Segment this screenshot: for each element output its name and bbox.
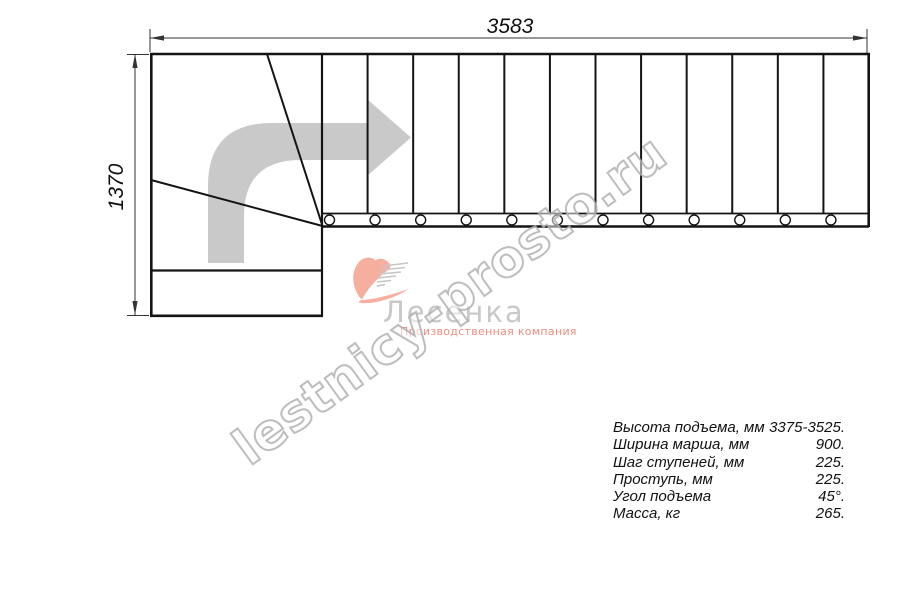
baluster-circle (416, 215, 426, 225)
spec-value: 3375-3525. (769, 419, 845, 436)
baluster-circle (461, 215, 471, 225)
spec-label: Угол подъема (613, 488, 711, 505)
spec-value: 45°. (818, 488, 845, 505)
spec-value: 225. (816, 471, 845, 488)
arrowhead-up (132, 54, 137, 68)
stair-outline (150, 53, 870, 317)
spec-value: 265. (816, 505, 845, 522)
spec-label: Высота подъема, мм (613, 419, 765, 436)
tread-lines (368, 54, 824, 214)
spec-value: 225. (816, 454, 845, 471)
height-dimension-label: 1370 (105, 137, 129, 237)
spec-table: Высота подъема, мм 3375-3525. Ширина мар… (613, 419, 845, 523)
spec-value: 900. (816, 436, 845, 453)
spec-row-width: Ширина марша, мм 900. (613, 436, 845, 453)
baluster-circle (780, 215, 790, 225)
spec-label: Масса, кг (613, 505, 680, 522)
baluster-circle (735, 215, 745, 225)
spec-row-step: Шаг ступеней, мм 225. (613, 454, 845, 471)
spec-label: Проступь, мм (613, 471, 713, 488)
logo-company-name: Лесенка (383, 295, 573, 329)
baluster-circles (325, 215, 836, 225)
spec-label: Ширина марша, мм (613, 436, 749, 453)
baluster-circle (689, 215, 699, 225)
spec-row-angle: Угол подъема 45°. (613, 488, 845, 505)
spec-row-height: Высота подъема, мм 3375-3525. (613, 419, 845, 436)
logo-swoosh-lobe (353, 258, 390, 300)
baluster-circle (644, 215, 654, 225)
spec-row-tread: Проступь, мм 225. (613, 471, 845, 488)
arrowhead-down (132, 301, 137, 315)
baluster-circle (507, 215, 517, 225)
spec-row-mass: Масса, кг 265. (613, 505, 845, 522)
baluster-circle (325, 215, 335, 225)
baluster-circle (370, 215, 380, 225)
baluster-circle (826, 215, 836, 225)
spec-label: Шаг ступеней, мм (613, 454, 744, 471)
stair-drawing-page: 3583 1370 Лесенка Производственная компа… (0, 0, 900, 600)
direction-arrow (208, 99, 411, 263)
width-dimension-label: 3583 (460, 15, 560, 39)
baluster-circle (598, 215, 608, 225)
logo-tagline: Производственная компания (400, 325, 570, 338)
arrowhead-right (853, 35, 867, 40)
baluster-circle (552, 215, 562, 225)
arrowhead-left (150, 35, 164, 40)
